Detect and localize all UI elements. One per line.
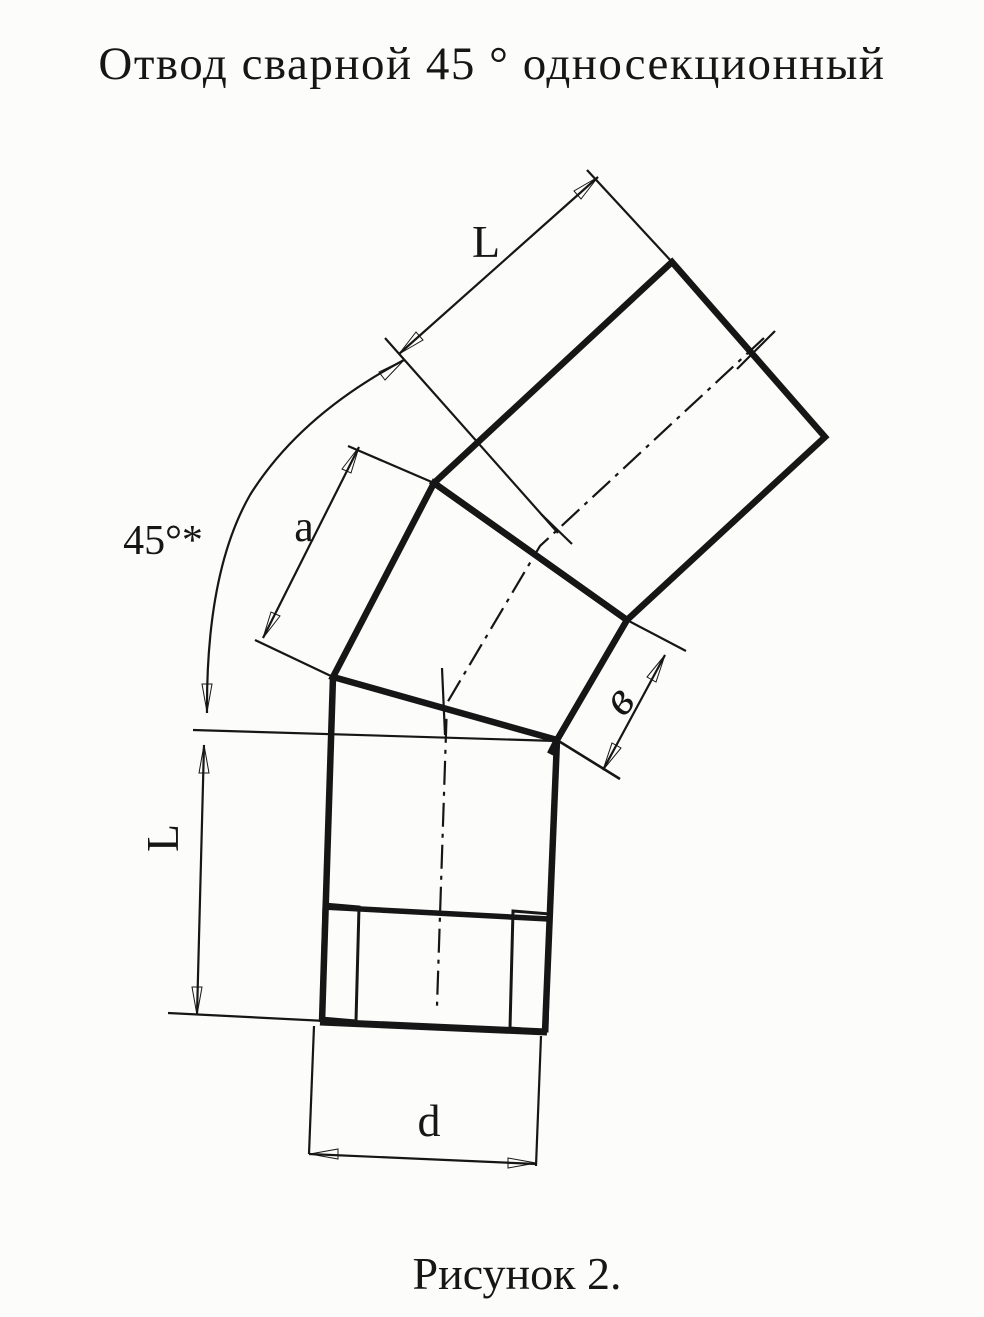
extension-line <box>385 338 558 533</box>
backing-ring-top-edge <box>323 907 549 919</box>
top-pipe-section <box>434 262 825 620</box>
centerline-end-tick <box>737 331 775 369</box>
extension-line <box>193 730 557 741</box>
dim-label-angle: 45°* <box>123 518 203 564</box>
dim-label-a: a <box>294 502 314 551</box>
extension-line <box>309 1026 314 1154</box>
dimension-a: a <box>255 446 434 677</box>
figure-caption: Рисунок 2. <box>413 1248 622 1299</box>
extension-line <box>536 1036 541 1166</box>
arrowhead <box>647 655 665 682</box>
dim-label-L-top: L <box>472 216 500 267</box>
dimension-d: d <box>309 1026 541 1168</box>
dimension-line <box>309 1154 537 1164</box>
arrowhead <box>342 447 359 473</box>
dim-label-L-left: L <box>137 824 188 852</box>
extension-line <box>627 620 686 651</box>
extension-line <box>255 640 333 677</box>
wedge-outline <box>333 483 627 740</box>
dimension-v: в <box>557 620 686 779</box>
dim-label-d: d <box>418 1095 441 1146</box>
dimension-L-top: L <box>385 170 672 533</box>
dim-label-v: в <box>591 675 645 725</box>
extension-line <box>348 446 434 483</box>
dimension-angle-45: 45°* <box>123 360 404 713</box>
scanned-drawing-page: Отвод сварной 45 ° односекционный Рисуно… <box>0 0 984 1317</box>
elbow-technical-drawing: Отвод сварной 45 ° односекционный Рисуно… <box>0 0 984 1317</box>
extension-line <box>587 170 672 262</box>
extension-line <box>168 1013 326 1021</box>
top-pipe-outline <box>434 262 825 620</box>
dimension-line <box>197 745 204 1015</box>
dimension-L-left: L <box>137 730 557 1021</box>
middle-wedge-section <box>333 483 627 754</box>
centerline-lower-weld-tick <box>442 668 445 735</box>
arrowhead <box>263 612 280 638</box>
drawing-title: Отвод сварной 45 ° односекционный <box>98 38 885 90</box>
arrowhead <box>603 743 621 770</box>
